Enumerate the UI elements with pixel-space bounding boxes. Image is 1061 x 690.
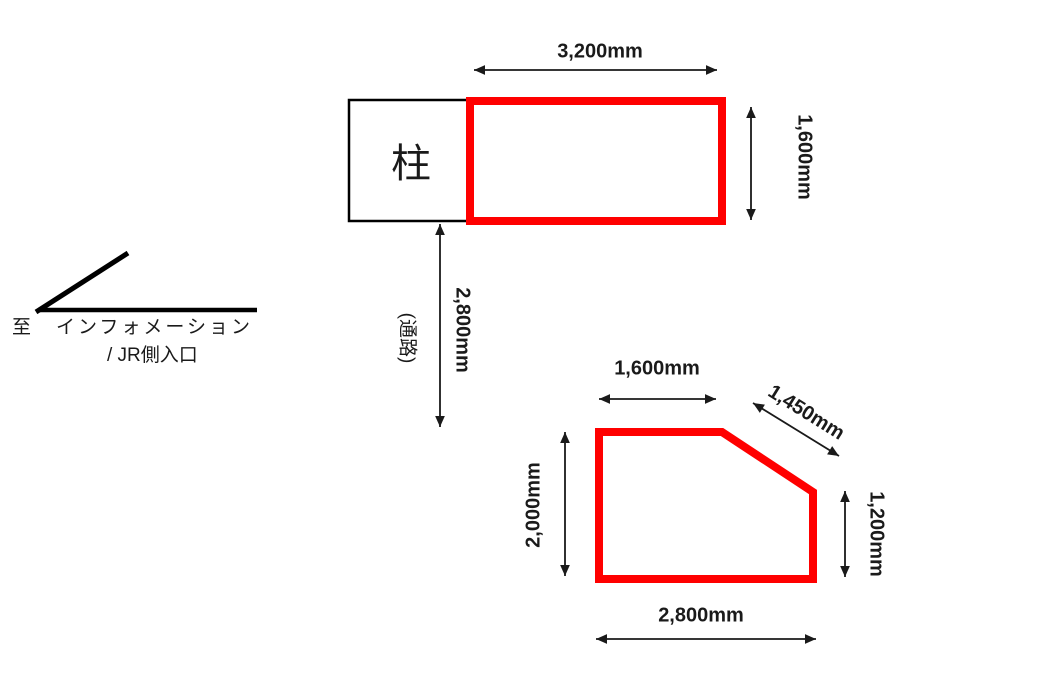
booth-polygon-red [599, 432, 813, 579]
nav-arrow-barb [36, 253, 128, 312]
nav-text-information: 至 インフォメーション [12, 312, 253, 339]
dim-label-1600-poly-top: 1,600mm [614, 358, 700, 381]
dim-label-2800-passage: 2,800mm [451, 287, 474, 373]
floor-plan-diagram: 3,200mm 1,600mm 2,800mm (通路) 柱 至 インフォメーシ… [0, 0, 1061, 690]
dim-label-2800-poly-bottom: 2,800mm [658, 605, 744, 628]
booth-rect-red [470, 101, 722, 221]
passage-label: (通路) [396, 313, 423, 364]
dim-label-3200: 3,200mm [557, 41, 643, 64]
dim-label-2000-poly-left: 2,000mm [523, 462, 546, 548]
pillar-label: 柱 [391, 131, 431, 189]
dim-label-1200-poly-right: 1,200mm [865, 491, 888, 577]
dim-label-1600-right: 1,600mm [793, 114, 816, 200]
nav-text-jr-entrance: / JR側入口 [107, 340, 198, 367]
